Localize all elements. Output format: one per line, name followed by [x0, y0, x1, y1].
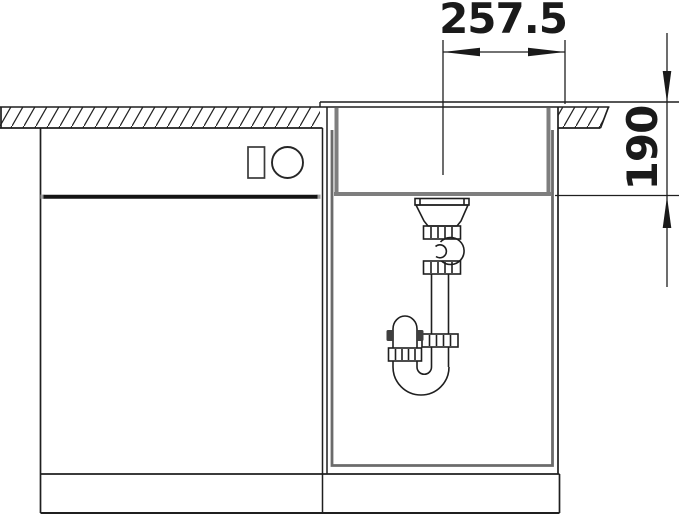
drain-siphon-assembly	[387, 199, 470, 396]
union-nut-4	[389, 348, 422, 361]
countertop-left-slab	[0, 107, 323, 128]
sink-base-cabinet	[41, 107, 560, 513]
depth-arrow-top	[663, 71, 672, 103]
left-base-cabinet	[41, 128, 323, 513]
depth-arrow-bottom	[663, 197, 672, 229]
u-trap	[387, 316, 450, 395]
depth-dimension-label: 190	[618, 106, 667, 191]
plinth	[41, 474, 560, 513]
countertop-right-slab	[558, 107, 609, 128]
drain-strainer	[415, 199, 469, 227]
sink-cross-section-drawing: 257.5 190	[0, 0, 679, 516]
installation-diagram: 257.5 190	[0, 0, 679, 516]
trap-side-lug-right	[417, 330, 424, 341]
width-arrow-right	[528, 48, 565, 57]
front-panel-knob	[272, 147, 303, 178]
union-nut-1	[424, 226, 461, 239]
union-nut-2	[424, 261, 461, 274]
cabinet-inner-box	[332, 130, 553, 466]
trap-dome-cap	[393, 316, 417, 329]
depth-dimension: 190	[555, 33, 679, 287]
union-nut-3	[422, 334, 458, 347]
front-panel-square	[248, 147, 265, 178]
width-arrow-left	[443, 48, 480, 57]
width-dimension-label: 257.5	[439, 0, 567, 43]
tailpipe	[432, 274, 449, 367]
countertop	[0, 102, 679, 128]
trap-side-lug-left	[387, 330, 394, 341]
